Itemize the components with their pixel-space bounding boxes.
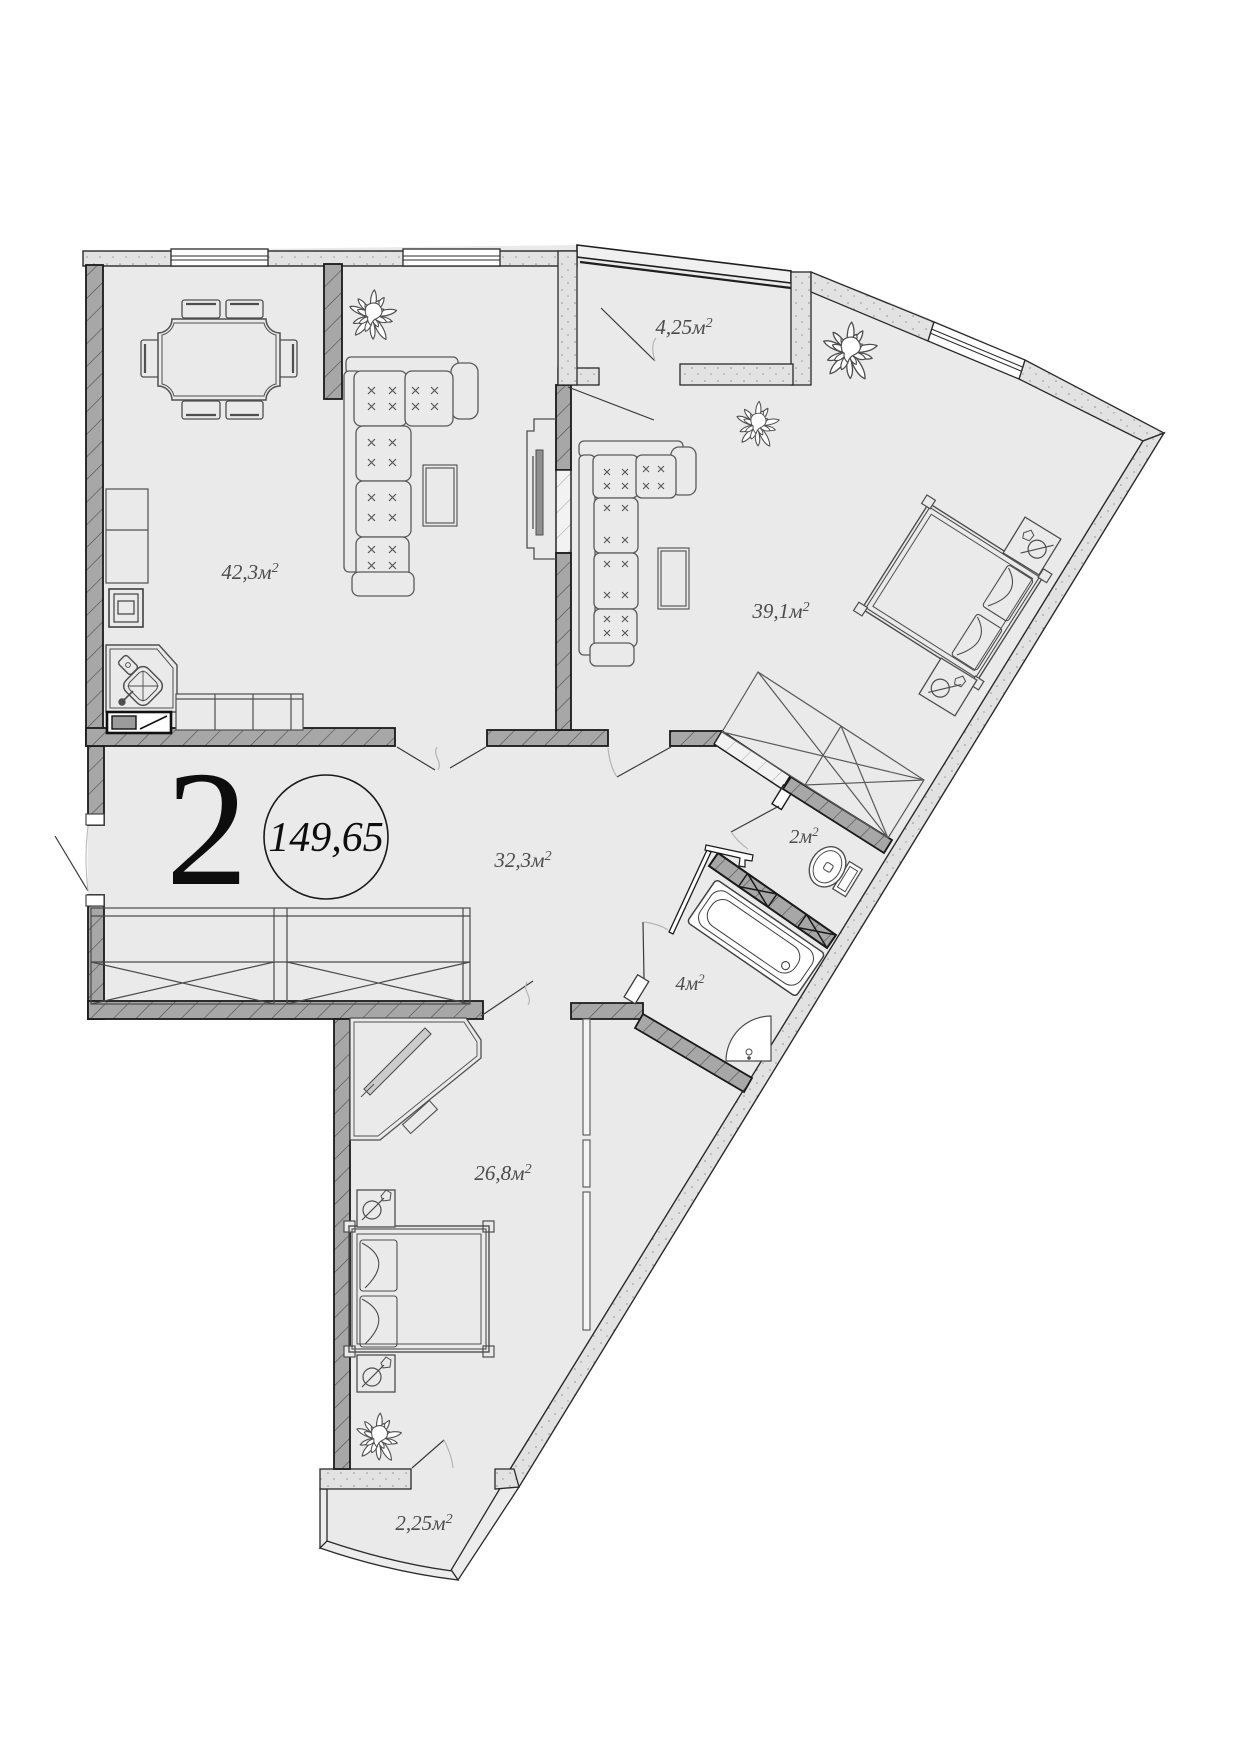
svg-text:2,25м2: 2,25м2 [395,1511,452,1535]
svg-text:39,1м2: 39,1м2 [751,599,809,623]
svg-text:26,8м2: 26,8м2 [474,1161,531,1185]
svg-text:42,3м2: 42,3м2 [221,560,278,584]
svg-text:4,25м2: 4,25м2 [655,315,712,339]
svg-text:149,65: 149,65 [268,815,384,861]
svg-text:32,3м2: 32,3м2 [493,848,551,872]
svg-text:2: 2 [166,737,249,920]
